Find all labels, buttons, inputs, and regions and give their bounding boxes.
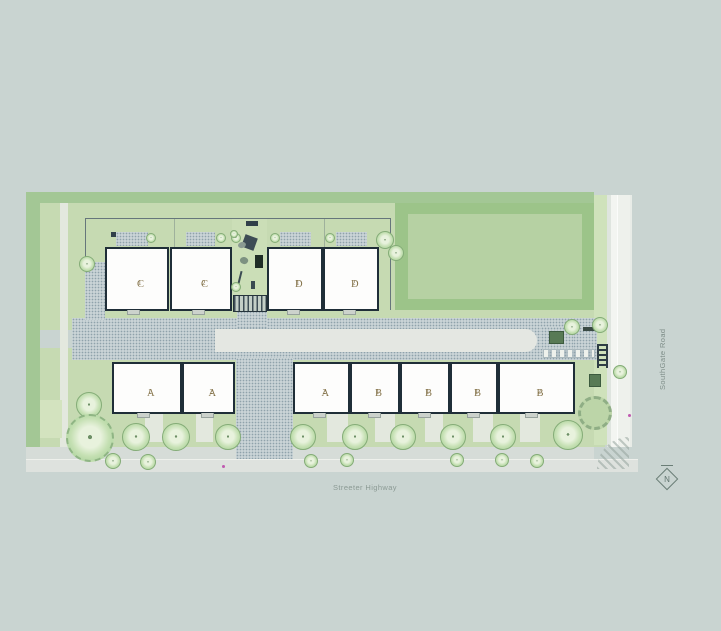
tree-icon xyxy=(340,453,354,467)
tree-icon xyxy=(450,453,464,467)
site-plan: C1C2D1D2A1A2A2B1B1B1B2 Streeter Highway … xyxy=(0,0,721,631)
tree-icon xyxy=(146,233,156,243)
entry-walk-stub xyxy=(196,414,213,442)
tree-icon xyxy=(79,256,95,272)
tree-icon xyxy=(592,317,608,333)
tree-icon xyxy=(495,453,509,467)
tree-icon xyxy=(162,423,190,451)
porch-step xyxy=(201,413,214,418)
building-A1: A1 xyxy=(112,362,182,414)
tree-icon xyxy=(390,424,416,450)
porch-step xyxy=(192,310,205,315)
tree-icon xyxy=(388,245,404,261)
tree-icon xyxy=(304,454,318,468)
porch-step xyxy=(418,413,431,418)
survey-marker-dot xyxy=(628,414,631,417)
tree-icon xyxy=(140,454,156,470)
tree-icon xyxy=(530,454,544,468)
building-D2: D2 xyxy=(323,247,379,311)
tree-icon xyxy=(325,233,335,243)
tree-icon xyxy=(564,319,580,335)
building-D1: D1 xyxy=(267,247,323,311)
building-B1b: B1 xyxy=(400,362,450,414)
porch-step xyxy=(525,413,538,418)
driveway-pad xyxy=(116,232,148,246)
driveway-pad xyxy=(280,232,311,246)
building-A2: A2 xyxy=(182,362,235,414)
tree-icon xyxy=(215,424,241,450)
building-C1: C1 xyxy=(105,247,169,311)
north-arrow-tick xyxy=(661,465,673,466)
tree-icon xyxy=(553,420,583,450)
porch-step xyxy=(467,413,480,418)
southgate-road-label: SouthGate Road xyxy=(658,310,667,390)
tree-icon xyxy=(440,424,466,450)
tree-icon xyxy=(270,233,280,243)
building-A2b: A2 xyxy=(293,362,350,414)
building-B2: B2 xyxy=(498,362,575,414)
generated-layer: C1C2D1D2A1A2A2B1B1B1B2 xyxy=(0,0,721,631)
porch-step xyxy=(287,310,300,315)
tree-icon xyxy=(231,282,241,292)
tree-icon xyxy=(342,424,368,450)
north-arrow: N xyxy=(652,462,682,502)
tree-icon xyxy=(613,365,627,379)
tree-icon xyxy=(490,424,516,450)
spiky-tree-icon xyxy=(66,414,114,462)
building-C2: C2 xyxy=(170,247,232,311)
entry-walk-stub xyxy=(520,414,540,442)
tree-icon xyxy=(230,230,238,238)
porch-step xyxy=(137,413,150,418)
north-arrow-letter: N xyxy=(652,475,682,484)
tree-icon xyxy=(216,233,226,243)
porch-step xyxy=(127,310,140,315)
streeter-highway-label: Streeter Highway xyxy=(300,483,430,492)
tree-icon xyxy=(290,424,316,450)
survey-marker-dot xyxy=(222,465,225,468)
building-B1a: B1 xyxy=(350,362,400,414)
driveway-pad xyxy=(336,232,367,246)
building-B1c: B1 xyxy=(450,362,498,414)
porch-step xyxy=(313,413,326,418)
porch-step xyxy=(343,310,356,315)
porch-step xyxy=(368,413,381,418)
driveway-pad xyxy=(186,232,215,246)
tree-icon xyxy=(105,453,121,469)
tree-icon xyxy=(122,423,150,451)
